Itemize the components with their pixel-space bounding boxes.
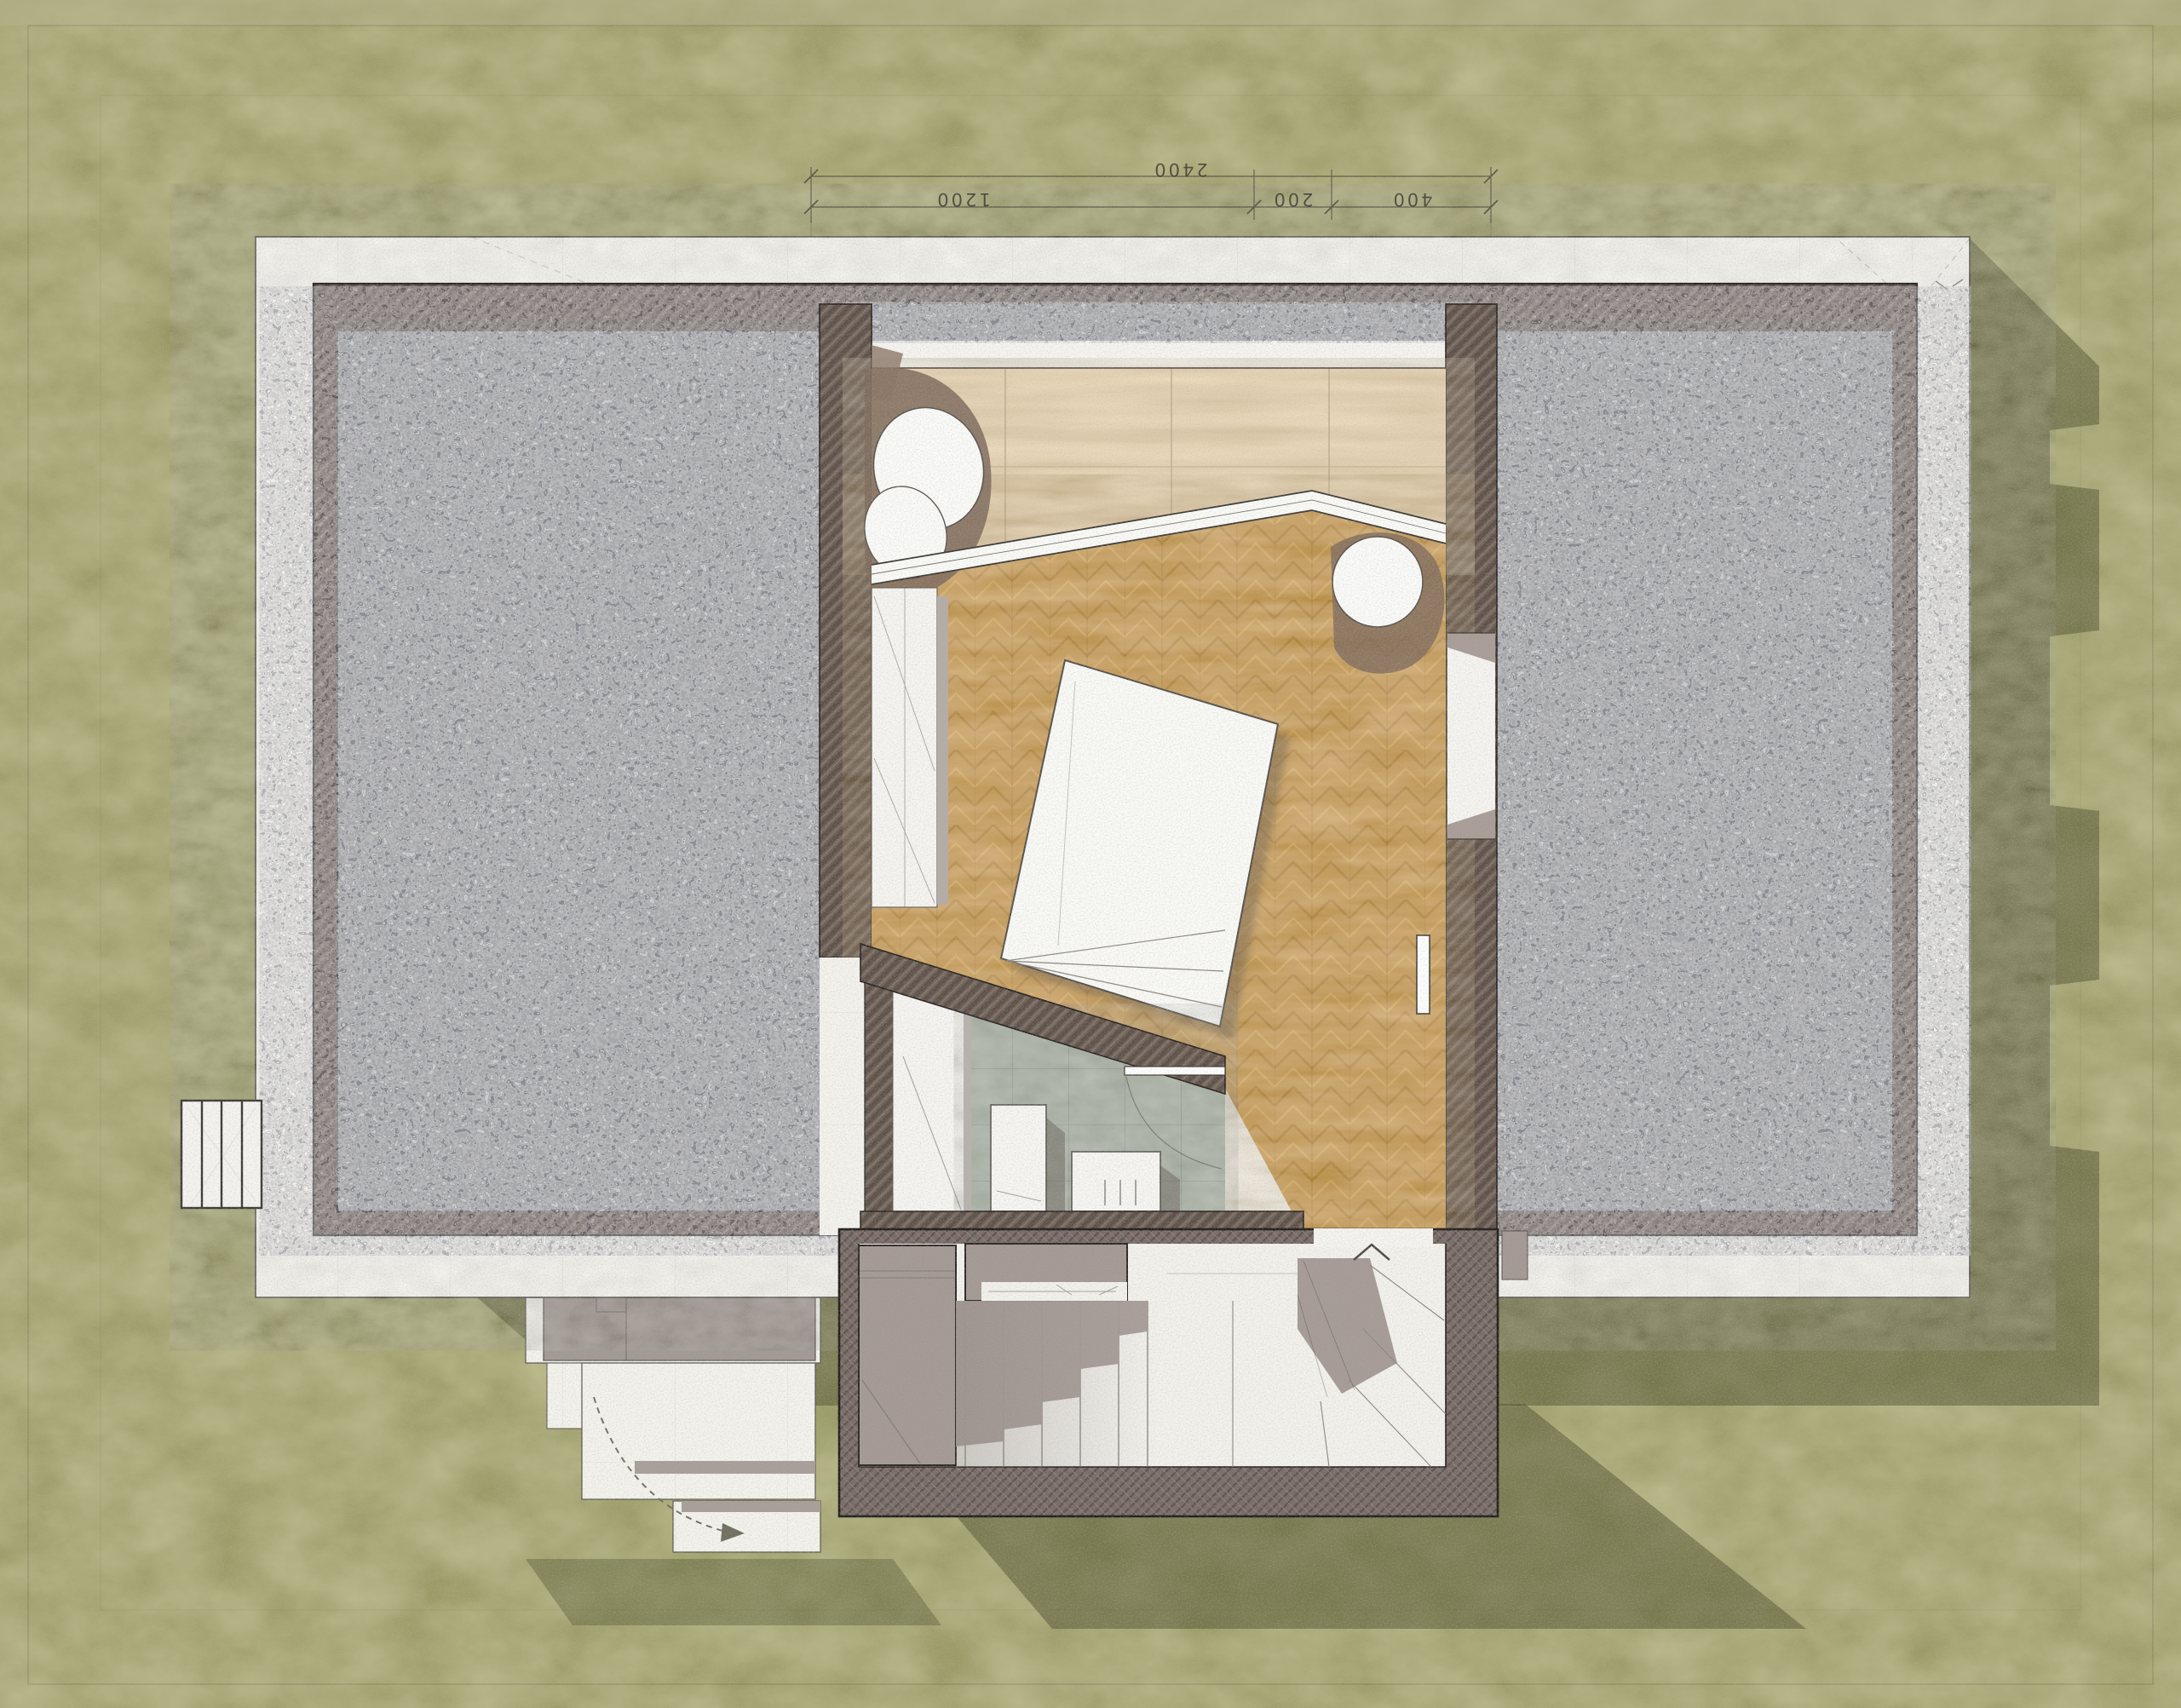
floor-plan-sheet: 2400 1200 200 400 bbox=[0, 0, 2181, 1708]
floor-plan-canvas bbox=[0, 0, 2181, 1708]
dimension-label-segment-2: 200 bbox=[1271, 189, 1313, 210]
paper-grain-overlay bbox=[0, 0, 2181, 1708]
dimension-label-overall: 2400 bbox=[1152, 159, 1207, 180]
dimension-label-segment-3: 400 bbox=[1390, 189, 1432, 210]
dimension-label-segment-1: 1200 bbox=[935, 189, 990, 210]
